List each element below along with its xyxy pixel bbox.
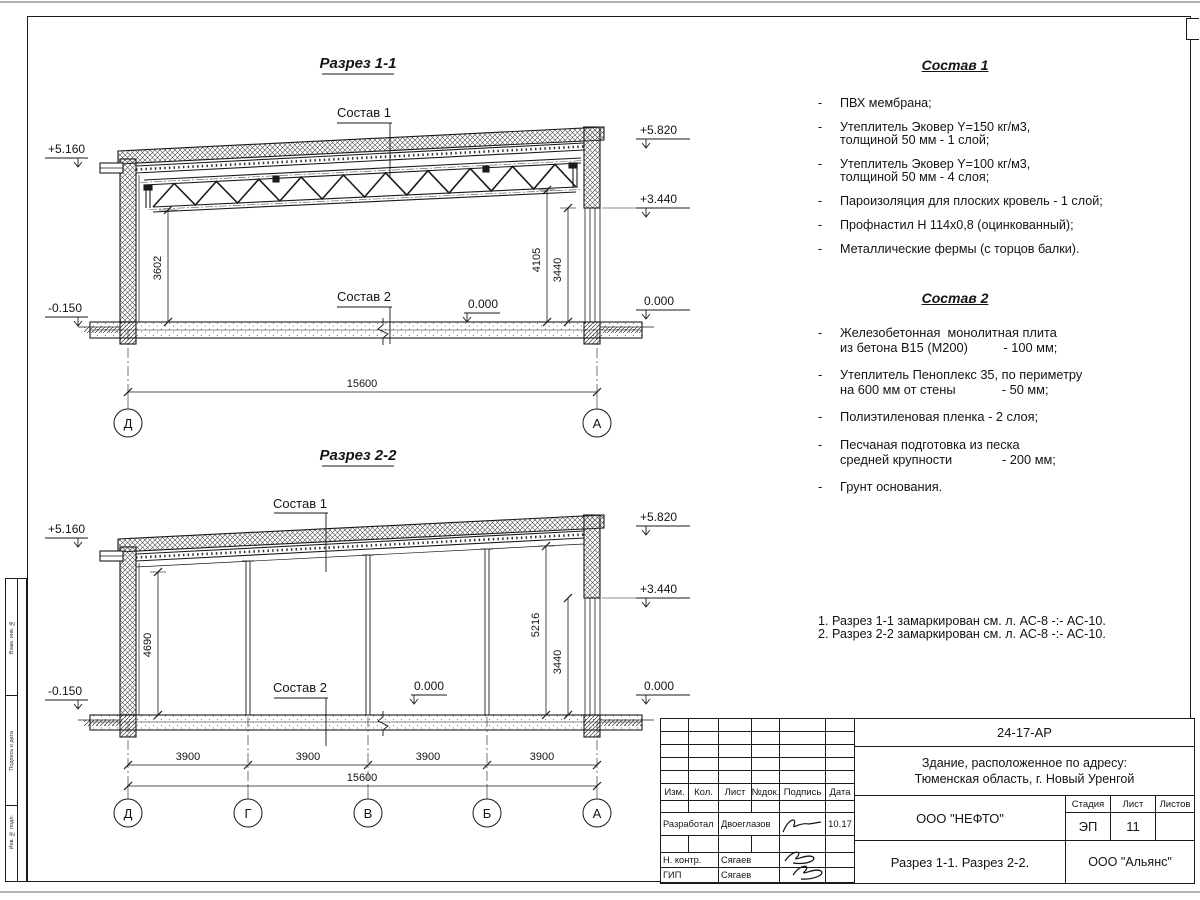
dim-bay: 3900 <box>530 751 554 763</box>
grid-letter: Д <box>124 806 133 821</box>
dim-height-right1: 4105 <box>531 248 543 272</box>
signature-cell <box>780 868 826 883</box>
project-line2: Тюменская область, г. Новый Уренгой <box>915 771 1135 787</box>
roof-slab <box>118 515 604 567</box>
elevation-label: -0.150 <box>48 301 82 315</box>
paper-edge-top <box>0 1 1200 3</box>
truss-diagonals <box>153 164 576 207</box>
person-name: Сягаев <box>719 868 780 883</box>
margin-label: Взам. инв. № <box>9 620 15 654</box>
elevation-arrow <box>642 695 650 704</box>
elevation-arrow <box>642 310 650 319</box>
margin-divider <box>17 579 18 881</box>
elevation-arrow <box>74 317 82 326</box>
person-name: Сягаев <box>719 853 780 868</box>
dim-height-right1: 5216 <box>530 613 542 637</box>
bottom-dimension: 15600 Д А <box>114 330 611 437</box>
sostav1-list: -ПВХ мембрана;-Утеплитель Эковер Y=150 к… <box>818 97 1200 267</box>
entrance-canopy <box>100 163 123 173</box>
dim-height-left: 4690 <box>142 633 154 657</box>
elevation-arrow <box>74 158 82 167</box>
grid-letter: Г <box>244 806 251 821</box>
elevation-label: 0.000 <box>644 294 674 308</box>
elevation-arrow <box>463 313 471 322</box>
item-text: Утеплитель Эковер Y=100 кг/м3, толщиной … <box>840 158 1030 184</box>
margin-label: Подпись и дата <box>9 731 15 771</box>
project-name: Здание, расположенное по адресу: Тюменск… <box>855 747 1194 796</box>
item-dash: - <box>818 243 840 256</box>
item-text: Железобетонная монолитная плита из бетон… <box>840 326 1057 355</box>
right-wall <box>583 515 601 715</box>
person-role: Н. контр. <box>661 853 719 868</box>
material-item: -Пароизоляция для плоских кровель - 1 сл… <box>818 195 1200 208</box>
material-item: -Грунт основания. <box>818 480 1200 495</box>
item-dash: - <box>818 438 840 467</box>
item-text: Металлические фермы (с торцов балки). <box>840 243 1079 256</box>
elevation-arrow <box>74 700 82 709</box>
margin-cell: Взам. инв. № <box>6 579 17 696</box>
title-block: Изм. Кол. Лист №док. Подпись Дата Разраб… <box>660 718 1195 884</box>
person-role: ГИП <box>661 868 719 883</box>
person-name: Двоеглазов <box>719 813 780 836</box>
material-item: -Железобетонная монолитная плита из бето… <box>818 326 1200 355</box>
stage-label: Стадия <box>1066 796 1111 813</box>
corner-stamp-box <box>1186 18 1199 40</box>
right-wall <box>583 127 601 322</box>
person-role: Разработал <box>661 813 719 836</box>
contractor-name: ООО "Альянс" <box>1066 841 1194 883</box>
note-line: 2. Разрез 2-2 замаркирован см. л. АС-8 -… <box>818 628 1106 641</box>
material-item: -Утеплитель Пеноплекс 35, по периметру н… <box>818 368 1200 397</box>
bottom-dimensions: 3900 3900 3900 3900 15600 Д Г В Б А <box>114 717 611 827</box>
col-date: Дата <box>826 784 855 801</box>
material-item: -Утеплитель Эковер Y=100 кг/м3, толщиной… <box>818 158 1200 184</box>
elevation-label: +3.440 <box>640 582 677 596</box>
elevation-label: 0.000 <box>414 679 444 693</box>
dim-height-right2: 3440 <box>552 258 564 282</box>
doc-code: 24-17-АР <box>855 719 1194 747</box>
elevation-arrow <box>642 208 650 217</box>
col-kol: Кол. <box>689 784 719 801</box>
dim-bay: 3900 <box>416 751 440 763</box>
section2-title: Разрез 2-2 <box>319 447 397 464</box>
item-dash: - <box>818 410 840 425</box>
item-dash: - <box>818 219 840 232</box>
elevation-label: -0.150 <box>48 684 82 698</box>
item-text: Утеплитель Пеноплекс 35, по периметру на… <box>840 368 1082 397</box>
elevation-label: +5.160 <box>48 522 85 536</box>
person-date <box>826 853 855 868</box>
person-date <box>826 868 855 883</box>
section-2-2-drawing: Разрез 2-2 <box>40 430 690 850</box>
grid-letter: А <box>593 806 602 821</box>
item-dash: - <box>818 97 840 110</box>
dim-height-left: 3602 <box>152 256 164 280</box>
grid-letter: В <box>364 806 373 821</box>
item-text: Песчаная подготовка из песка средней кру… <box>840 438 1056 467</box>
elevation-arrow <box>642 139 650 148</box>
callout-label: Состав 1 <box>273 496 327 511</box>
paper-edge-bottom <box>0 891 1200 893</box>
callout-label: Состав 1 <box>337 105 391 120</box>
sheet-label: Лист <box>1111 796 1156 813</box>
callout-label: Состав 2 <box>337 289 391 304</box>
elevation-label: 0.000 <box>468 297 498 311</box>
margin-label: Инв. № подл. <box>9 815 15 849</box>
sheet-number: 11 <box>1111 813 1156 841</box>
elevation-arrow <box>410 695 418 704</box>
material-item: -Утеплитель Эковер Y=150 кг/м3, толщиной… <box>818 121 1200 147</box>
item-text: Утеплитель Эковер Y=150 кг/м3, толщиной … <box>840 121 1030 147</box>
elevation-arrow <box>642 598 650 607</box>
sostav1-title: Состав 1 <box>855 57 1055 73</box>
elevation-label: +3.440 <box>640 192 677 206</box>
item-dash: - <box>818 121 840 147</box>
title-block-main: 24-17-АР Здание, расположенное по адресу… <box>855 719 1194 883</box>
content-title: Разрез 1-1. Разрез 2-2. <box>855 841 1066 883</box>
material-item: -ПВХ мембрана; <box>818 97 1200 110</box>
col-sign: Подпись <box>780 784 826 801</box>
vertical-dimensions: 3602 4105 3440 <box>152 186 576 326</box>
elevation-label: +5.160 <box>48 142 85 156</box>
item-text: Полиэтиленовая пленка - 2 слоя; <box>840 410 1038 425</box>
dim-total: 15600 <box>347 772 378 784</box>
dim-bay: 3900 <box>176 751 200 763</box>
callout-sostav2: Состав 2 <box>273 680 328 746</box>
margin-cell: Инв. № подл. <box>6 806 17 859</box>
grid-letter: Б <box>483 806 492 821</box>
person-date: 10.17 <box>826 813 855 836</box>
item-dash: - <box>818 368 840 397</box>
item-dash: - <box>818 195 840 208</box>
item-dash: - <box>818 326 840 355</box>
material-item: -Профнастил Н 114х0,8 (оцинкованный); <box>818 219 1200 232</box>
item-dash: - <box>818 480 840 495</box>
section1-title: Разрез 1-1 <box>319 55 396 72</box>
item-text: Пароизоляция для плоских кровель - 1 сло… <box>840 195 1103 208</box>
dim-bay: 3900 <box>296 751 320 763</box>
vertical-dimensions: 4690 5216 3440 <box>142 542 572 719</box>
sheets-label: Листов <box>1156 796 1194 813</box>
notes: 1. Разрез 1-1 замаркирован см. л. АС-8 -… <box>818 615 1106 641</box>
left-wall <box>120 159 139 322</box>
elevation-label: +5.820 <box>640 123 677 137</box>
elevation-arrow <box>74 538 82 547</box>
grid-letter: Д <box>124 416 133 431</box>
dim-total: 15600 <box>347 378 378 390</box>
grid-letter: А <box>593 416 602 431</box>
drawing-sheet: { "margin_column": { "labels": ["Взам. и… <box>0 0 1200 900</box>
callout-label: Состав 2 <box>273 680 327 695</box>
stage-value: ЭП <box>1066 813 1111 841</box>
margin-cell: Подпись и дата <box>6 696 17 806</box>
sostav2-list: -Железобетонная монолитная плита из бето… <box>818 326 1200 508</box>
sheets-total <box>1156 813 1194 841</box>
section-1-1-drawing: Разрез 1-1 <box>40 40 690 440</box>
elevation-label: 0.000 <box>644 679 674 693</box>
material-item: -Металлические фермы (с торцов балки). <box>818 243 1200 256</box>
roof-slab <box>118 127 604 173</box>
col-doc: №док. <box>752 784 780 801</box>
client-name: ООО "НЕФТО" <box>855 796 1066 841</box>
item-text: Грунт основания. <box>840 480 942 495</box>
col-izm: Изм. <box>661 784 689 801</box>
entrance-canopy <box>100 551 123 561</box>
title-block-revision-table: Изм. Кол. Лист №док. Подпись Дата Разраб… <box>661 719 855 883</box>
signature-cell <box>780 813 826 836</box>
signature-cell <box>780 853 826 868</box>
margin-column: Взам. инв. № Подпись и дата Инв. № подл. <box>5 578 27 882</box>
item-dash: - <box>818 158 840 184</box>
material-item: -Песчаная подготовка из песка средней кр… <box>818 438 1200 467</box>
elevation-arrow <box>642 526 650 535</box>
project-line1: Здание, расположенное по адресу: <box>922 755 1127 771</box>
elevation-label: +5.820 <box>640 510 677 524</box>
left-wall <box>120 547 139 715</box>
sostav2-title: Состав 2 <box>855 290 1055 306</box>
item-text: ПВХ мембрана; <box>840 97 932 110</box>
dim-height-right2: 3440 <box>552 650 564 674</box>
material-item: -Полиэтиленовая пленка - 2 слоя; <box>818 410 1200 425</box>
item-text: Профнастил Н 114х0,8 (оцинкованный); <box>840 219 1074 232</box>
col-list: Лист <box>719 784 752 801</box>
